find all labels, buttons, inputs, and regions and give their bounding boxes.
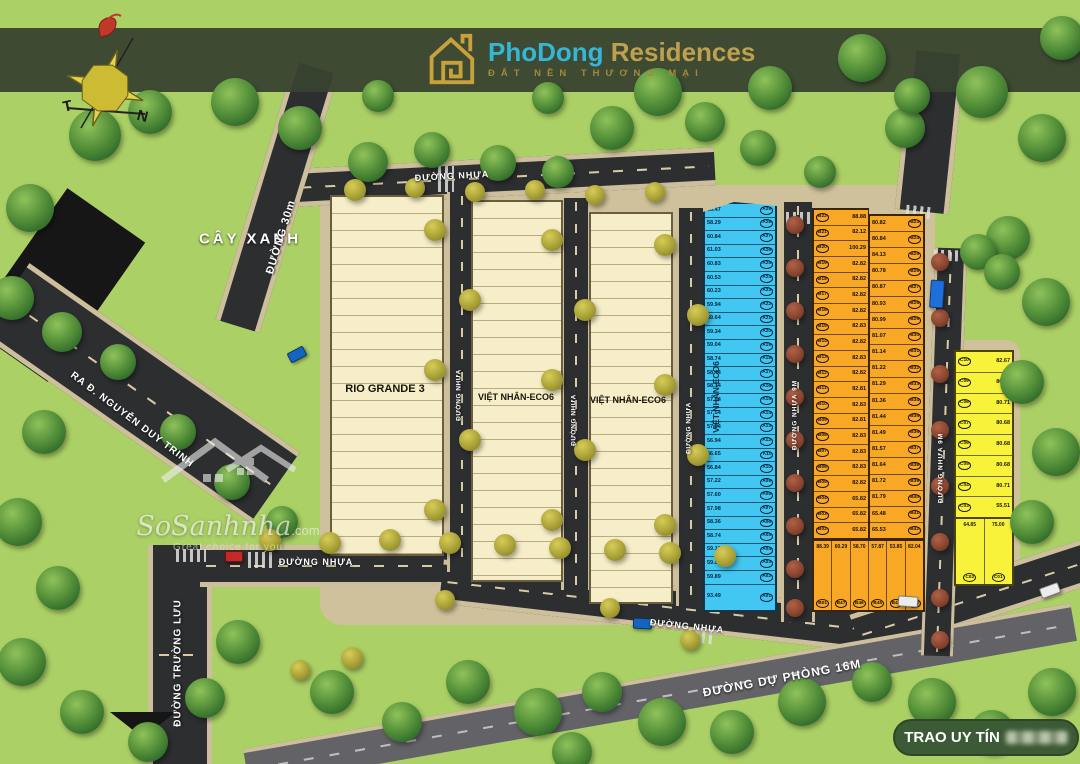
lot-A11: 56.65A11 — [705, 448, 775, 462]
lot-id: A17 — [760, 369, 773, 378]
lot-area: 81.64 — [872, 463, 886, 469]
lot-area: 82.83 — [852, 324, 866, 330]
lot-B38: 81.64B38 — [870, 457, 923, 473]
lot-id: A07 — [760, 505, 773, 514]
lot-area: 100.29 — [849, 246, 866, 252]
lot-id: A05 — [760, 532, 773, 541]
lot-id: B33 — [908, 381, 921, 390]
lot-area: 80.68 — [996, 463, 1010, 469]
lot-B03: B0365.82 — [814, 507, 868, 523]
lot-area: 82.83 — [852, 356, 866, 362]
tree — [424, 359, 446, 381]
lot-id: A06 — [760, 519, 773, 528]
lot-id: B35 — [908, 413, 921, 422]
label-eco6-2: VIỆT NHÂN-ECO6 — [590, 395, 666, 405]
lot-area: 82.83 — [852, 403, 866, 409]
tree — [931, 631, 949, 649]
lot-area: 65.53 — [872, 528, 886, 534]
lot-area: 65.82 — [852, 512, 866, 518]
lot-id: A26 — [760, 247, 773, 256]
lot-area: 93.49 — [707, 594, 721, 600]
tree — [710, 710, 754, 754]
block-b-lots-right: 80.82B2380.84B2484.13B2580.78B2680.87B27… — [869, 214, 925, 540]
lot-A24: 60.53A24 — [705, 271, 775, 285]
lot-B08: B0882.83 — [814, 428, 868, 444]
brand-secondary: Residences — [611, 37, 756, 67]
lot-id: A01 — [760, 593, 773, 602]
crosswalk — [248, 552, 276, 568]
lot-B35: 81.44B35 — [870, 409, 923, 425]
lot-id: A15 — [760, 396, 773, 405]
lot-area: 56.84 — [707, 466, 721, 472]
lot-id: B32 — [908, 365, 921, 374]
lot-area: 57.87 — [871, 544, 884, 550]
tree — [278, 106, 322, 150]
lot-id: B38 — [908, 462, 921, 471]
label-eco6-1: VIỆT NHÂN-ECO6 — [478, 392, 554, 402]
lot-B25: 84.13B25 — [870, 247, 923, 263]
tree — [6, 184, 54, 232]
lot-id: A24 — [760, 274, 773, 283]
lot-area: 80.78 — [872, 269, 886, 275]
lot-B09: B0982.81 — [814, 413, 868, 429]
tree — [185, 678, 225, 718]
lot-id: B18 — [816, 276, 829, 285]
tree — [931, 253, 949, 271]
lot-id: B36 — [908, 429, 921, 438]
tree — [211, 78, 259, 126]
lot-id: B11 — [816, 385, 829, 394]
tree — [786, 599, 804, 617]
lot-id: B17 — [816, 291, 829, 300]
lot-area: 81.57 — [872, 447, 886, 453]
tree — [585, 185, 605, 205]
tree — [348, 142, 388, 182]
lot-B41: 65.48B41 — [870, 506, 923, 522]
lot-B36: 81.49B36 — [870, 425, 923, 441]
tree — [786, 345, 804, 363]
tree — [590, 106, 634, 150]
brand-primary: PhoDong — [488, 37, 604, 67]
lot-B15: B1582.83 — [814, 319, 868, 335]
tree — [574, 299, 596, 321]
tree — [22, 410, 66, 454]
lot-id: B24 — [908, 235, 921, 244]
lot-id: B01 — [816, 599, 829, 608]
lot-id: C10 — [958, 357, 971, 366]
lot-area: 60.84 — [707, 235, 721, 241]
tree — [740, 130, 776, 166]
lot-area: 56.65 — [707, 452, 721, 458]
tree — [541, 509, 563, 531]
tree — [931, 589, 949, 607]
lot-area: 82.83 — [852, 434, 866, 440]
lot-area: 60.23 — [707, 289, 721, 295]
tree — [0, 638, 46, 686]
lot-A10: 56.84A10 — [705, 461, 775, 475]
lot-area: 82.04 — [908, 544, 921, 550]
lot-area: 82.12 — [852, 230, 866, 236]
tree — [459, 289, 481, 311]
lot-id: B22 — [816, 213, 829, 222]
lot-area: 84.13 — [872, 253, 886, 259]
lot-id: B16 — [816, 307, 829, 316]
tree — [459, 429, 481, 451]
lot-area: 82.81 — [852, 418, 866, 424]
lot-area: 65.82 — [852, 528, 866, 534]
tree — [778, 678, 826, 726]
tree — [362, 80, 394, 112]
lot-id: B05 — [816, 479, 829, 488]
tree — [600, 598, 620, 618]
lot-area: 56.94 — [707, 439, 721, 445]
lot-B34: 81.36B34 — [870, 393, 923, 409]
lot-area: 82.83 — [852, 465, 866, 471]
site-plan-map: 63.47A2958.29A2860.84A2761.03A2660.83A25… — [0, 0, 1080, 764]
lot-area: 81.36 — [872, 399, 886, 405]
lot-area: 80.87 — [872, 285, 886, 291]
label-asphalt-bottom-left: ĐƯỜNG NHỰA — [279, 557, 354, 567]
lot-A07: 57.98A07 — [705, 502, 775, 516]
tree — [1000, 360, 1044, 404]
lot-id: A25 — [760, 260, 773, 269]
lot-id: A22 — [760, 301, 773, 310]
tree — [804, 156, 836, 188]
label-truong-luu: ĐƯỜNG TRƯỜNG LƯU — [173, 599, 184, 726]
lot-id: A19 — [760, 342, 773, 351]
lot-A02: 59.89A02 — [705, 570, 775, 584]
lot-C08: C0880.71 — [956, 393, 1012, 414]
watermark-tagline: Great choice for you — [118, 542, 338, 553]
lot-A28: 58.29A28 — [705, 217, 775, 231]
lot-A05: 58.74A05 — [705, 529, 775, 543]
tree — [714, 545, 736, 567]
lot-B07: B0782.83 — [814, 444, 868, 460]
tree — [525, 180, 545, 200]
lot-A08: 57.60A08 — [705, 488, 775, 502]
lot-id: B47 — [835, 599, 848, 608]
tree — [514, 688, 562, 736]
lot-area: 60.53 — [707, 276, 721, 282]
lot-id: B34 — [908, 397, 921, 406]
lot-A09: 57.22A09 — [705, 475, 775, 489]
lot-id: B09 — [816, 417, 829, 426]
lot-area: 57.22 — [707, 479, 721, 485]
lot-id: A20 — [760, 328, 773, 337]
lot-B06: B0682.83 — [814, 460, 868, 476]
lot-id: B02 — [816, 526, 829, 535]
tree — [541, 369, 563, 391]
lot-area: 82.82 — [852, 309, 866, 315]
lot-B46: 58.70B46 — [850, 541, 868, 610]
lot-area: 57.98 — [707, 507, 721, 513]
lot-area: 58.36 — [707, 520, 721, 526]
lot-id: C02 — [963, 573, 976, 582]
tree — [654, 514, 676, 536]
tree — [582, 672, 622, 712]
tree — [654, 374, 676, 396]
lot-area: 80.71 — [996, 484, 1010, 490]
lot-id: B31 — [908, 348, 921, 357]
trust-banner: TRAO UY TÍN — [893, 719, 1079, 756]
tree — [60, 690, 104, 734]
lot-A21: 59.64A21 — [705, 312, 775, 326]
lot-B42: 65.53B42 — [870, 522, 923, 538]
lot-area: 59.34 — [707, 330, 721, 336]
lot-B27: 80.87B27 — [870, 280, 923, 296]
lot-area: 80.99 — [872, 318, 886, 324]
tree — [439, 532, 461, 554]
label-9m-east: ĐƯỜNG NHỰA 9M — [938, 433, 945, 503]
tree — [645, 182, 665, 202]
lot-A20: 59.34A20 — [705, 325, 775, 339]
lot-id: B21 — [816, 229, 829, 238]
lot-area: 55.51 — [996, 504, 1010, 510]
tree — [424, 499, 446, 521]
lot-area: 81.44 — [872, 415, 886, 421]
tree — [1028, 668, 1076, 716]
lot-B33: 81.29B33 — [870, 377, 923, 393]
lot-B04: B0465.82 — [814, 491, 868, 507]
lot-area: 58.74 — [707, 534, 721, 540]
lot-id: B40 — [908, 494, 921, 503]
lot-area: 53.85 — [890, 544, 903, 550]
lot-area: 88.88 — [852, 215, 866, 221]
lot-id: B41 — [908, 510, 921, 519]
lot-area: 80.82 — [872, 221, 886, 227]
label-eco6-blue: VIỆT NHÂN-ECO6 — [711, 361, 721, 433]
lot-id: B13 — [816, 354, 829, 363]
lot-id: B30 — [908, 332, 921, 341]
lot-id: A09 — [760, 478, 773, 487]
lot-area: 81.72 — [872, 479, 886, 485]
lot-id: B42 — [908, 526, 921, 535]
lot-id: C06 — [958, 440, 971, 449]
lot-area: 81.79 — [872, 495, 886, 501]
lot-B11: B1182.81 — [814, 381, 868, 397]
tree — [638, 698, 686, 746]
tree — [659, 542, 681, 564]
label-rio-grande-3: RIO GRANDE 3 — [345, 383, 424, 395]
lot-B18: B1882.82 — [814, 272, 868, 288]
lot-B39: 81.72B39 — [870, 474, 923, 490]
lot-B40: 81.79B40 — [870, 490, 923, 506]
label-internal-road-2: ĐƯỜNG NHỰA — [571, 394, 578, 446]
tree — [1018, 114, 1066, 162]
tree — [0, 498, 42, 546]
lot-id: B10 — [816, 401, 829, 410]
lot-C05: C0580.68 — [956, 455, 1012, 476]
lot-B21: B2182.12 — [814, 225, 868, 241]
lot-B12: B1282.82 — [814, 366, 868, 382]
tree — [786, 216, 804, 234]
lot-C03: C0355.51 — [956, 496, 1012, 517]
lot-A01: 93.49A01 — [705, 584, 775, 610]
tree — [382, 702, 422, 742]
tree — [36, 566, 80, 610]
label-9m-west: ĐƯỜNG NHỰA 9M — [792, 380, 799, 450]
tree — [465, 182, 485, 202]
car — [286, 345, 307, 363]
lot-id: C05 — [958, 461, 971, 470]
lot-id: B19 — [816, 260, 829, 269]
lot-area: 82.82 — [852, 371, 866, 377]
lot-id: A27 — [760, 233, 773, 242]
lot-id: B46 — [853, 599, 866, 608]
lot-C01: 75.00C01 — [984, 519, 1013, 584]
tree — [931, 309, 949, 327]
lot-id: B08 — [816, 432, 829, 441]
compass-rose: T N — [45, 10, 160, 130]
label-internal-road-3: ĐƯỜNG NHỰA — [686, 402, 693, 454]
lot-B37: 81.57B37 — [870, 441, 923, 457]
tree — [542, 156, 574, 188]
lot-id: A18 — [760, 355, 773, 364]
lot-id: A11 — [760, 451, 773, 460]
lot-C04: C0480.71 — [956, 476, 1012, 497]
lot-B20: B20100.29 — [814, 240, 868, 256]
lot-id: A03 — [760, 559, 773, 568]
lot-area: 80.93 — [872, 302, 886, 308]
tree — [931, 365, 949, 383]
watermark-name: SoSanhnha — [136, 511, 291, 542]
lot-B10: B1082.83 — [814, 397, 868, 413]
tree — [604, 539, 626, 561]
lot-B23: 80.82B23 — [870, 216, 923, 231]
lot-id: B28 — [908, 300, 921, 309]
lot-id: C08 — [958, 399, 971, 408]
lot-area: 80.71 — [996, 401, 1010, 407]
logo-house-icon — [420, 30, 478, 88]
tree — [1010, 500, 1054, 544]
lot-A12: 56.94A12 — [705, 434, 775, 448]
lot-B05: B0582.82 — [814, 475, 868, 491]
tree — [654, 234, 676, 256]
block-b-lots-left: B2288.88B2182.12B20100.29B1982.82B1882.8… — [812, 208, 869, 540]
logo: PhoDong Residences ĐẤT NỀN THƯƠNG MẠI — [420, 30, 755, 88]
lot-area: 64.85 — [963, 522, 976, 528]
lot-id: A12 — [760, 437, 773, 446]
watermark-house-icon — [153, 432, 303, 506]
tree — [885, 108, 925, 148]
lot-area: 59.64 — [707, 316, 721, 322]
lot-A25: 60.83A25 — [705, 257, 775, 271]
tree — [216, 620, 260, 664]
tree — [446, 660, 490, 704]
tree — [310, 670, 354, 714]
lot-id: B45 — [871, 599, 884, 608]
lot-B45: 57.87B45 — [868, 541, 886, 610]
lot-id: A21 — [760, 315, 773, 324]
lot-B26: 80.78B26 — [870, 263, 923, 279]
lot-id: A14 — [760, 410, 773, 419]
lot-id: B15 — [816, 323, 829, 332]
tree — [786, 302, 804, 320]
lot-B17: B1782.82 — [814, 287, 868, 303]
tree — [685, 102, 725, 142]
lot-id: A13 — [760, 423, 773, 432]
lot-A22: 59.94A22 — [705, 298, 775, 312]
lot-id: B14 — [816, 338, 829, 347]
lot-A27: 60.84A27 — [705, 230, 775, 244]
tree — [541, 229, 563, 251]
tree — [494, 534, 516, 556]
lot-id: B23 — [908, 219, 921, 228]
lot-id: A02 — [760, 573, 773, 582]
tree — [838, 34, 886, 82]
banner-text: TRAO UY TÍN — [904, 729, 1000, 746]
lot-area: 61.03 — [707, 248, 721, 254]
lot-id: C01 — [992, 573, 1005, 582]
tree — [680, 630, 700, 650]
lot-id: A16 — [760, 383, 773, 392]
tree — [128, 722, 168, 762]
tree — [786, 474, 804, 492]
tree — [344, 179, 366, 201]
lot-area: 65.48 — [872, 512, 886, 518]
tree — [786, 517, 804, 535]
car — [929, 280, 945, 309]
lot-A19: 59.04A19 — [705, 339, 775, 353]
lot-id: B29 — [908, 316, 921, 325]
lot-area: 59.94 — [707, 303, 721, 309]
lot-id: A29 — [760, 206, 773, 215]
lot-id: B26 — [908, 268, 921, 277]
lot-area: 82.82 — [852, 340, 866, 346]
lot-C06: C0680.68 — [956, 434, 1012, 455]
tree — [1032, 428, 1080, 476]
lot-id: B20 — [816, 244, 829, 253]
lot-id: B25 — [908, 251, 921, 260]
tree — [549, 537, 571, 559]
lot-id: B27 — [908, 284, 921, 293]
tree — [956, 66, 1008, 118]
lot-id: B39 — [908, 478, 921, 487]
lot-area: 82.83 — [852, 450, 866, 456]
lot-area: 80.68 — [996, 442, 1010, 448]
lot-area: 60.29 — [835, 544, 848, 550]
lot-id: A04 — [760, 546, 773, 555]
lot-id: C07 — [958, 420, 971, 429]
lot-area: 81.29 — [872, 382, 886, 388]
label-internal-road-1: ĐƯỜNG NHỰA — [456, 369, 463, 421]
tree — [786, 259, 804, 277]
lot-id: C09 — [958, 378, 971, 387]
lot-A26: 61.03A26 — [705, 244, 775, 258]
lot-area: 80.84 — [872, 237, 886, 243]
lot-area: 81.07 — [872, 334, 886, 340]
lot-area: 88.39 — [816, 544, 829, 550]
lot-area: 59.89 — [707, 575, 721, 581]
block-c-lots-bottom: 64.85C0275.00C01 — [954, 518, 1014, 586]
lot-id: B07 — [816, 448, 829, 457]
tree — [931, 533, 949, 551]
lot-B28: 80.93B28 — [870, 296, 923, 312]
lot-area: 58.29 — [707, 221, 721, 227]
tree — [379, 529, 401, 551]
lot-B30: 81.07B30 — [870, 328, 923, 344]
lot-area: 65.82 — [852, 497, 866, 503]
lot-area: 75.00 — [992, 522, 1005, 528]
tree — [1022, 278, 1070, 326]
tree — [42, 312, 82, 352]
lot-B47: 60.29B47 — [831, 541, 849, 610]
lot-B24: 80.84B24 — [870, 231, 923, 247]
lot-id: B04 — [816, 495, 829, 504]
lot-area: 60.83 — [707, 262, 721, 268]
lot-B22: B2288.88 — [814, 210, 868, 225]
lot-B13: B1382.83 — [814, 350, 868, 366]
